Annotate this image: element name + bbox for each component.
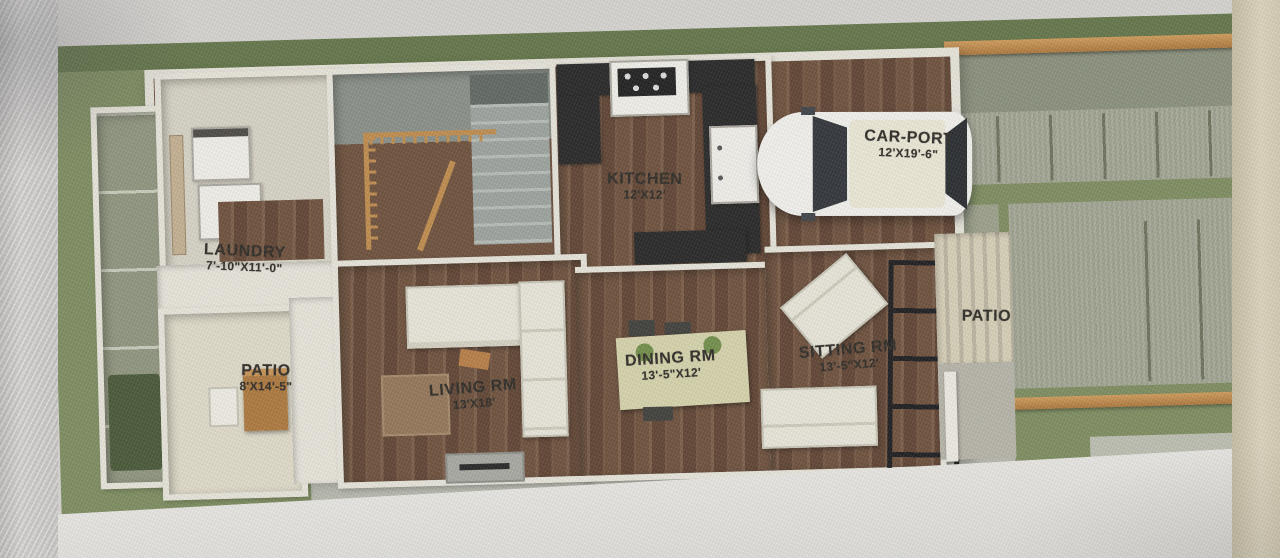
dining-chair bbox=[628, 320, 654, 337]
room-dims: 8'X14'-5" bbox=[239, 380, 292, 394]
stair-landing bbox=[470, 73, 549, 107]
room-label-carport: CAR-PORT 12'X19'-6" bbox=[863, 127, 953, 161]
sofa-sectional-chaise bbox=[518, 280, 568, 437]
room-label-patio-left: PATIO 8'X14'-5" bbox=[239, 362, 292, 393]
room-label-patio-right: PATIO bbox=[962, 308, 1012, 326]
washer bbox=[191, 126, 251, 182]
room-label-laundry: LAUNDRY 7'-10"X11'-0" bbox=[203, 241, 286, 275]
screen-bezel-left bbox=[0, 0, 58, 558]
cooktop bbox=[617, 67, 676, 97]
floorplan-render: LAUNDRY 7'-10"X11'-0" KITCHEN 12'X12' CA… bbox=[49, 14, 1247, 522]
stove bbox=[609, 59, 690, 117]
car-windshield bbox=[805, 116, 847, 212]
kitchen-counter-left bbox=[557, 95, 601, 164]
kitchen-island bbox=[634, 229, 747, 264]
side-yard-planting bbox=[108, 374, 163, 471]
washer-control-strip bbox=[193, 128, 248, 138]
sofa-sectional-horizontal bbox=[405, 283, 526, 348]
grass-strip-lower bbox=[1014, 382, 1245, 438]
car-mirror bbox=[801, 107, 815, 115]
upper-driveway-joints bbox=[946, 110, 1238, 184]
stair-railing bbox=[363, 129, 499, 250]
room-dims: 12'X19'-6" bbox=[878, 146, 938, 162]
photo-edge-right bbox=[1232, 0, 1280, 558]
room-name: PATIO bbox=[962, 308, 1012, 326]
photographed-screen: LAUNDRY 7'-10"X11'-0" KITCHEN 12'X12' CA… bbox=[0, 0, 1280, 558]
patio-right-fence bbox=[934, 232, 1014, 364]
porch-post bbox=[944, 371, 959, 461]
room-name: PATIO bbox=[241, 362, 291, 380]
refrigerator bbox=[709, 125, 759, 204]
car-mirror bbox=[801, 213, 815, 221]
room-name: KITCHEN bbox=[607, 170, 682, 188]
lower-driveway-joints bbox=[1094, 218, 1243, 382]
patio-chair bbox=[208, 386, 239, 427]
room-label-dining: DINING RM 13'-5"X12' bbox=[624, 347, 716, 383]
sitting-sofa bbox=[760, 386, 878, 449]
room-dims: 12'X12' bbox=[623, 188, 666, 201]
room-label-kitchen: KITCHEN 12'X12' bbox=[607, 170, 683, 201]
television bbox=[459, 463, 509, 470]
tv-console bbox=[445, 452, 525, 484]
dining-chair bbox=[643, 406, 673, 421]
